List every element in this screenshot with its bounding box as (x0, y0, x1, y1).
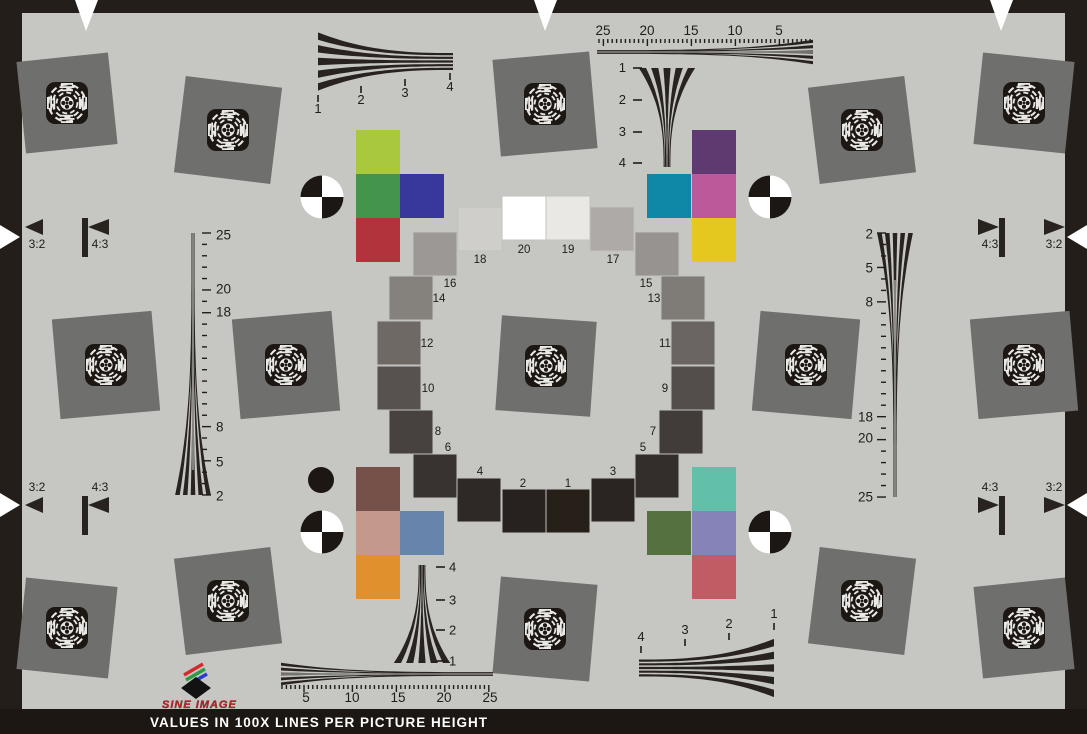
resolution-target-marker (841, 580, 883, 622)
resolution-target-marker (46, 607, 88, 649)
scale-label: 20 (436, 690, 451, 705)
scale-label: 2 (619, 92, 626, 107)
grayscale-chip-11 (671, 321, 715, 365)
grayscale-chip-label: 1 (565, 478, 571, 490)
grayscale-chip-15 (635, 232, 679, 276)
grayscale-chip-label: 16 (444, 278, 457, 290)
scale-label: 5 (302, 690, 310, 705)
scale-label: 15 (390, 690, 405, 705)
grayscale-chip-label: 20 (518, 244, 531, 256)
scale-label: 25 (482, 690, 497, 705)
resolution-target-marker (85, 344, 127, 386)
grayscale-chip-label: 8 (435, 426, 441, 438)
scale-label: 1 (619, 60, 626, 75)
color-patch-yellow-green (356, 130, 400, 174)
scale-label: 3 (449, 593, 456, 608)
color-patch-brown (356, 467, 400, 511)
grayscale-chip-label: 2 (520, 478, 526, 490)
aspect-label: 4:3 (92, 480, 109, 494)
aspect-label: 4:3 (982, 480, 999, 494)
resolution-target-marker (785, 344, 827, 386)
color-patch-magenta (692, 174, 736, 218)
grayscale-chip-10 (377, 366, 421, 410)
scale-label: 2 (357, 92, 364, 107)
grayscale-chip-4 (457, 478, 501, 522)
resolution-target-marker (524, 608, 566, 650)
scale-label: 3 (401, 85, 408, 100)
color-patch-salmon (356, 511, 400, 555)
grayscale-chip-20 (502, 196, 546, 240)
resolution-target-marker (207, 109, 249, 151)
scale-label: 18 (858, 410, 873, 425)
resolution-target-marker (1003, 607, 1045, 649)
scale-label: 8 (216, 420, 224, 435)
grayscale-chip-5 (635, 454, 679, 498)
resolution-target-marker (265, 344, 307, 386)
scale-label: 4 (446, 79, 453, 94)
aspect-bar (999, 496, 1005, 535)
resolution-target-marker (1003, 82, 1045, 124)
scale-label: 25 (216, 228, 231, 243)
color-patch-mint (692, 467, 736, 511)
grayscale-chip-label: 4 (477, 466, 484, 478)
color-patch-violet (692, 511, 736, 555)
grayscale-chip-label: 6 (445, 442, 451, 454)
aspect-label: 3:2 (29, 237, 46, 251)
color-patch-yellow (692, 218, 736, 262)
footer-note: VALUES IN 100X LINES PER PICTURE HEIGHT (150, 715, 488, 730)
scale-label: 10 (727, 23, 742, 38)
color-patch-teal (647, 174, 691, 218)
grayscale-chip-2 (502, 489, 546, 533)
grayscale-chip-9 (671, 366, 715, 410)
grayscale-chip-label: 18 (474, 254, 487, 266)
grayscale-chip-13 (661, 276, 705, 320)
grayscale-chip-label: 15 (640, 278, 653, 290)
scale-label: 5 (865, 261, 873, 276)
scale-label: 2 (725, 616, 732, 631)
color-patch-blue (400, 174, 444, 218)
grayscale-chip-label: 19 (562, 244, 575, 256)
color-patch-purple (692, 130, 736, 174)
scale-label: 25 (858, 490, 873, 505)
grayscale-chip-12 (377, 321, 421, 365)
footer-bar: VALUES IN 100X LINES PER PICTURE HEIGHT (0, 709, 1087, 734)
scale-label: 25 (595, 23, 610, 38)
scale-label: 4 (449, 560, 456, 575)
resolution-target-marker (524, 83, 566, 125)
scale-label: 2 (449, 623, 456, 638)
scale-label: 2 (216, 489, 224, 504)
resolution-test-chart: 3:24:34:33:23:24:34:33:2 123456789101112… (0, 0, 1087, 734)
quadrant-checker-circle (749, 511, 792, 554)
grayscale-chip-label: 13 (648, 293, 661, 305)
color-patch-steel-blue (400, 511, 444, 555)
aspect-label: 4:3 (92, 237, 109, 251)
quadrant-checker-circle (301, 176, 344, 219)
grayscale-chip-8 (389, 410, 433, 454)
resolution-target-marker (207, 580, 249, 622)
test-chart-canvas: 3:24:34:33:23:24:34:33:2 123456789101112… (0, 0, 1087, 734)
scale-label: 20 (858, 431, 873, 446)
grayscale-chip-17 (590, 207, 634, 251)
quadrant-checker-circle (301, 511, 344, 554)
aspect-label: 3:2 (1046, 480, 1063, 494)
grayscale-chip-1 (546, 489, 590, 533)
scale-label: 8 (865, 295, 873, 310)
grayscale-chip-label: 12 (421, 338, 434, 350)
black-dot (308, 467, 334, 493)
aspect-label: 3:2 (1046, 237, 1063, 251)
grayscale-chip-label: 14 (433, 293, 446, 305)
color-patch-red (356, 218, 400, 262)
scale-label: 1 (770, 606, 777, 621)
grayscale-chip-label: 7 (650, 426, 656, 438)
scale-label: 5 (216, 455, 224, 470)
scale-label: 4 (619, 155, 626, 170)
scale-label: 10 (344, 690, 359, 705)
scale-label: 5 (775, 23, 783, 38)
grayscale-chip-label: 11 (659, 338, 671, 350)
scale-label: 15 (683, 23, 698, 38)
grayscale-chip-14 (389, 276, 433, 320)
resolution-target-marker (46, 82, 88, 124)
scale-label: 20 (639, 23, 654, 38)
grayscale-chip-7 (659, 410, 703, 454)
resolution-target-marker (525, 345, 567, 387)
color-patch-rose (692, 555, 736, 599)
quadrant-checker-circle (749, 176, 792, 219)
aspect-label: 4:3 (982, 237, 999, 251)
grayscale-chip-3 (591, 478, 635, 522)
scale-label: 18 (216, 305, 231, 320)
scale-label: 3 (619, 124, 626, 139)
scale-label: 3 (681, 622, 688, 637)
grayscale-chip-19 (546, 196, 590, 240)
scale-label: 1 (314, 101, 321, 116)
aspect-label: 3:2 (29, 480, 46, 494)
grayscale-chip-6 (413, 454, 457, 498)
scale-label: 20 (216, 282, 231, 297)
scale-label: 1 (449, 654, 456, 669)
resolution-target-marker (841, 109, 883, 151)
color-patch-olive-green (647, 511, 691, 555)
aspect-bar (82, 496, 88, 535)
color-patch-orange (356, 555, 400, 599)
grayscale-chip-label: 10 (422, 383, 435, 395)
grayscale-chip-label: 5 (640, 442, 646, 454)
resolution-target-marker (1003, 344, 1045, 386)
scale-label: 2 (865, 227, 873, 242)
scale-label: 4 (637, 629, 644, 644)
aspect-bar (999, 218, 1005, 257)
grayscale-chip-16 (413, 232, 457, 276)
brand-name: SINE IMAGE (162, 699, 237, 711)
grayscale-chip-18 (458, 207, 502, 251)
grayscale-chip-label: 9 (662, 383, 668, 395)
grayscale-chip-label: 3 (610, 466, 616, 478)
grayscale-chip-label: 17 (607, 254, 620, 266)
aspect-bar (82, 218, 88, 257)
color-patch-green (356, 174, 400, 218)
